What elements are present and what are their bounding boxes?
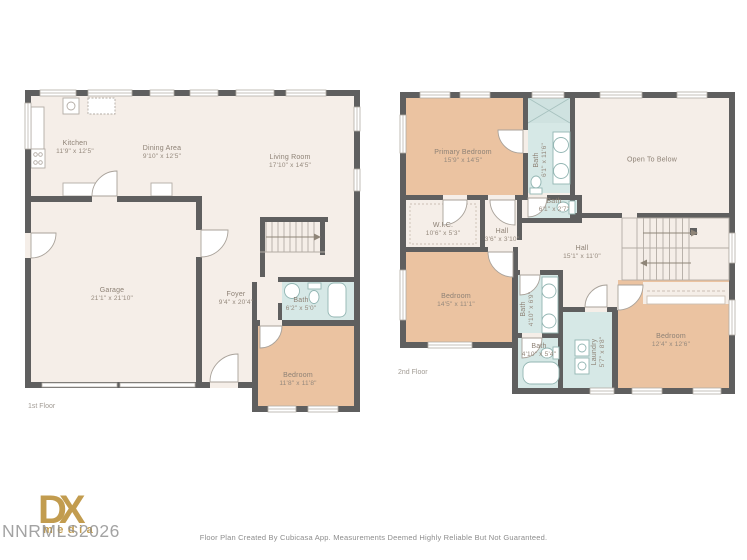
disclaimer-text: Floor Plan Created By Cubicasa App. Meas…: [0, 533, 747, 542]
first-floor-drawing: [20, 85, 365, 425]
floor1-floor-fill: [25, 90, 360, 412]
second-floor-plan: Primary Bedroom 15'9" x 14'5" Bath 6'1" …: [395, 85, 740, 405]
floor-label-2nd: 2nd Floor: [398, 369, 428, 376]
first-floor-plan: Kitchen 11'9" x 12'5" Dining Area 9'10" …: [20, 85, 365, 425]
floor-label-1st: 1st Floor: [28, 403, 55, 410]
second-floor-drawing: [395, 85, 740, 405]
floor-plan-page: Kitchen 11'9" x 12'5" Dining Area 9'10" …: [0, 0, 747, 560]
